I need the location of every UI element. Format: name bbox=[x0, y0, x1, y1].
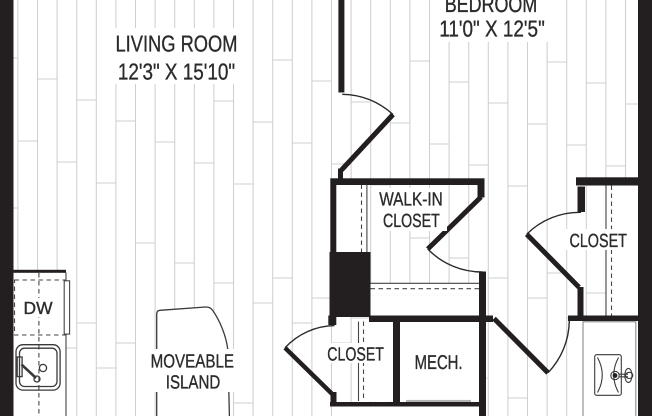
svg-text:LIVING ROOM: LIVING ROOM bbox=[116, 31, 238, 57]
svg-text:ISLAND: ISLAND bbox=[166, 373, 221, 394]
svg-text:WALK-IN: WALK-IN bbox=[379, 190, 443, 211]
svg-text:12'3" X 15'10": 12'3" X 15'10" bbox=[118, 58, 235, 84]
svg-text:CLOSET: CLOSET bbox=[327, 345, 384, 366]
svg-text:CLOSET: CLOSET bbox=[569, 231, 627, 252]
svg-text:MOVEABLE: MOVEABLE bbox=[151, 351, 234, 372]
svg-text:CLOSET: CLOSET bbox=[383, 211, 440, 232]
svg-text:MECH.: MECH. bbox=[415, 352, 463, 374]
svg-text:BEDROOM: BEDROOM bbox=[445, 0, 538, 17]
svg-text:DW: DW bbox=[24, 298, 53, 318]
svg-text:11'0" X 12'5": 11'0" X 12'5" bbox=[439, 16, 545, 42]
